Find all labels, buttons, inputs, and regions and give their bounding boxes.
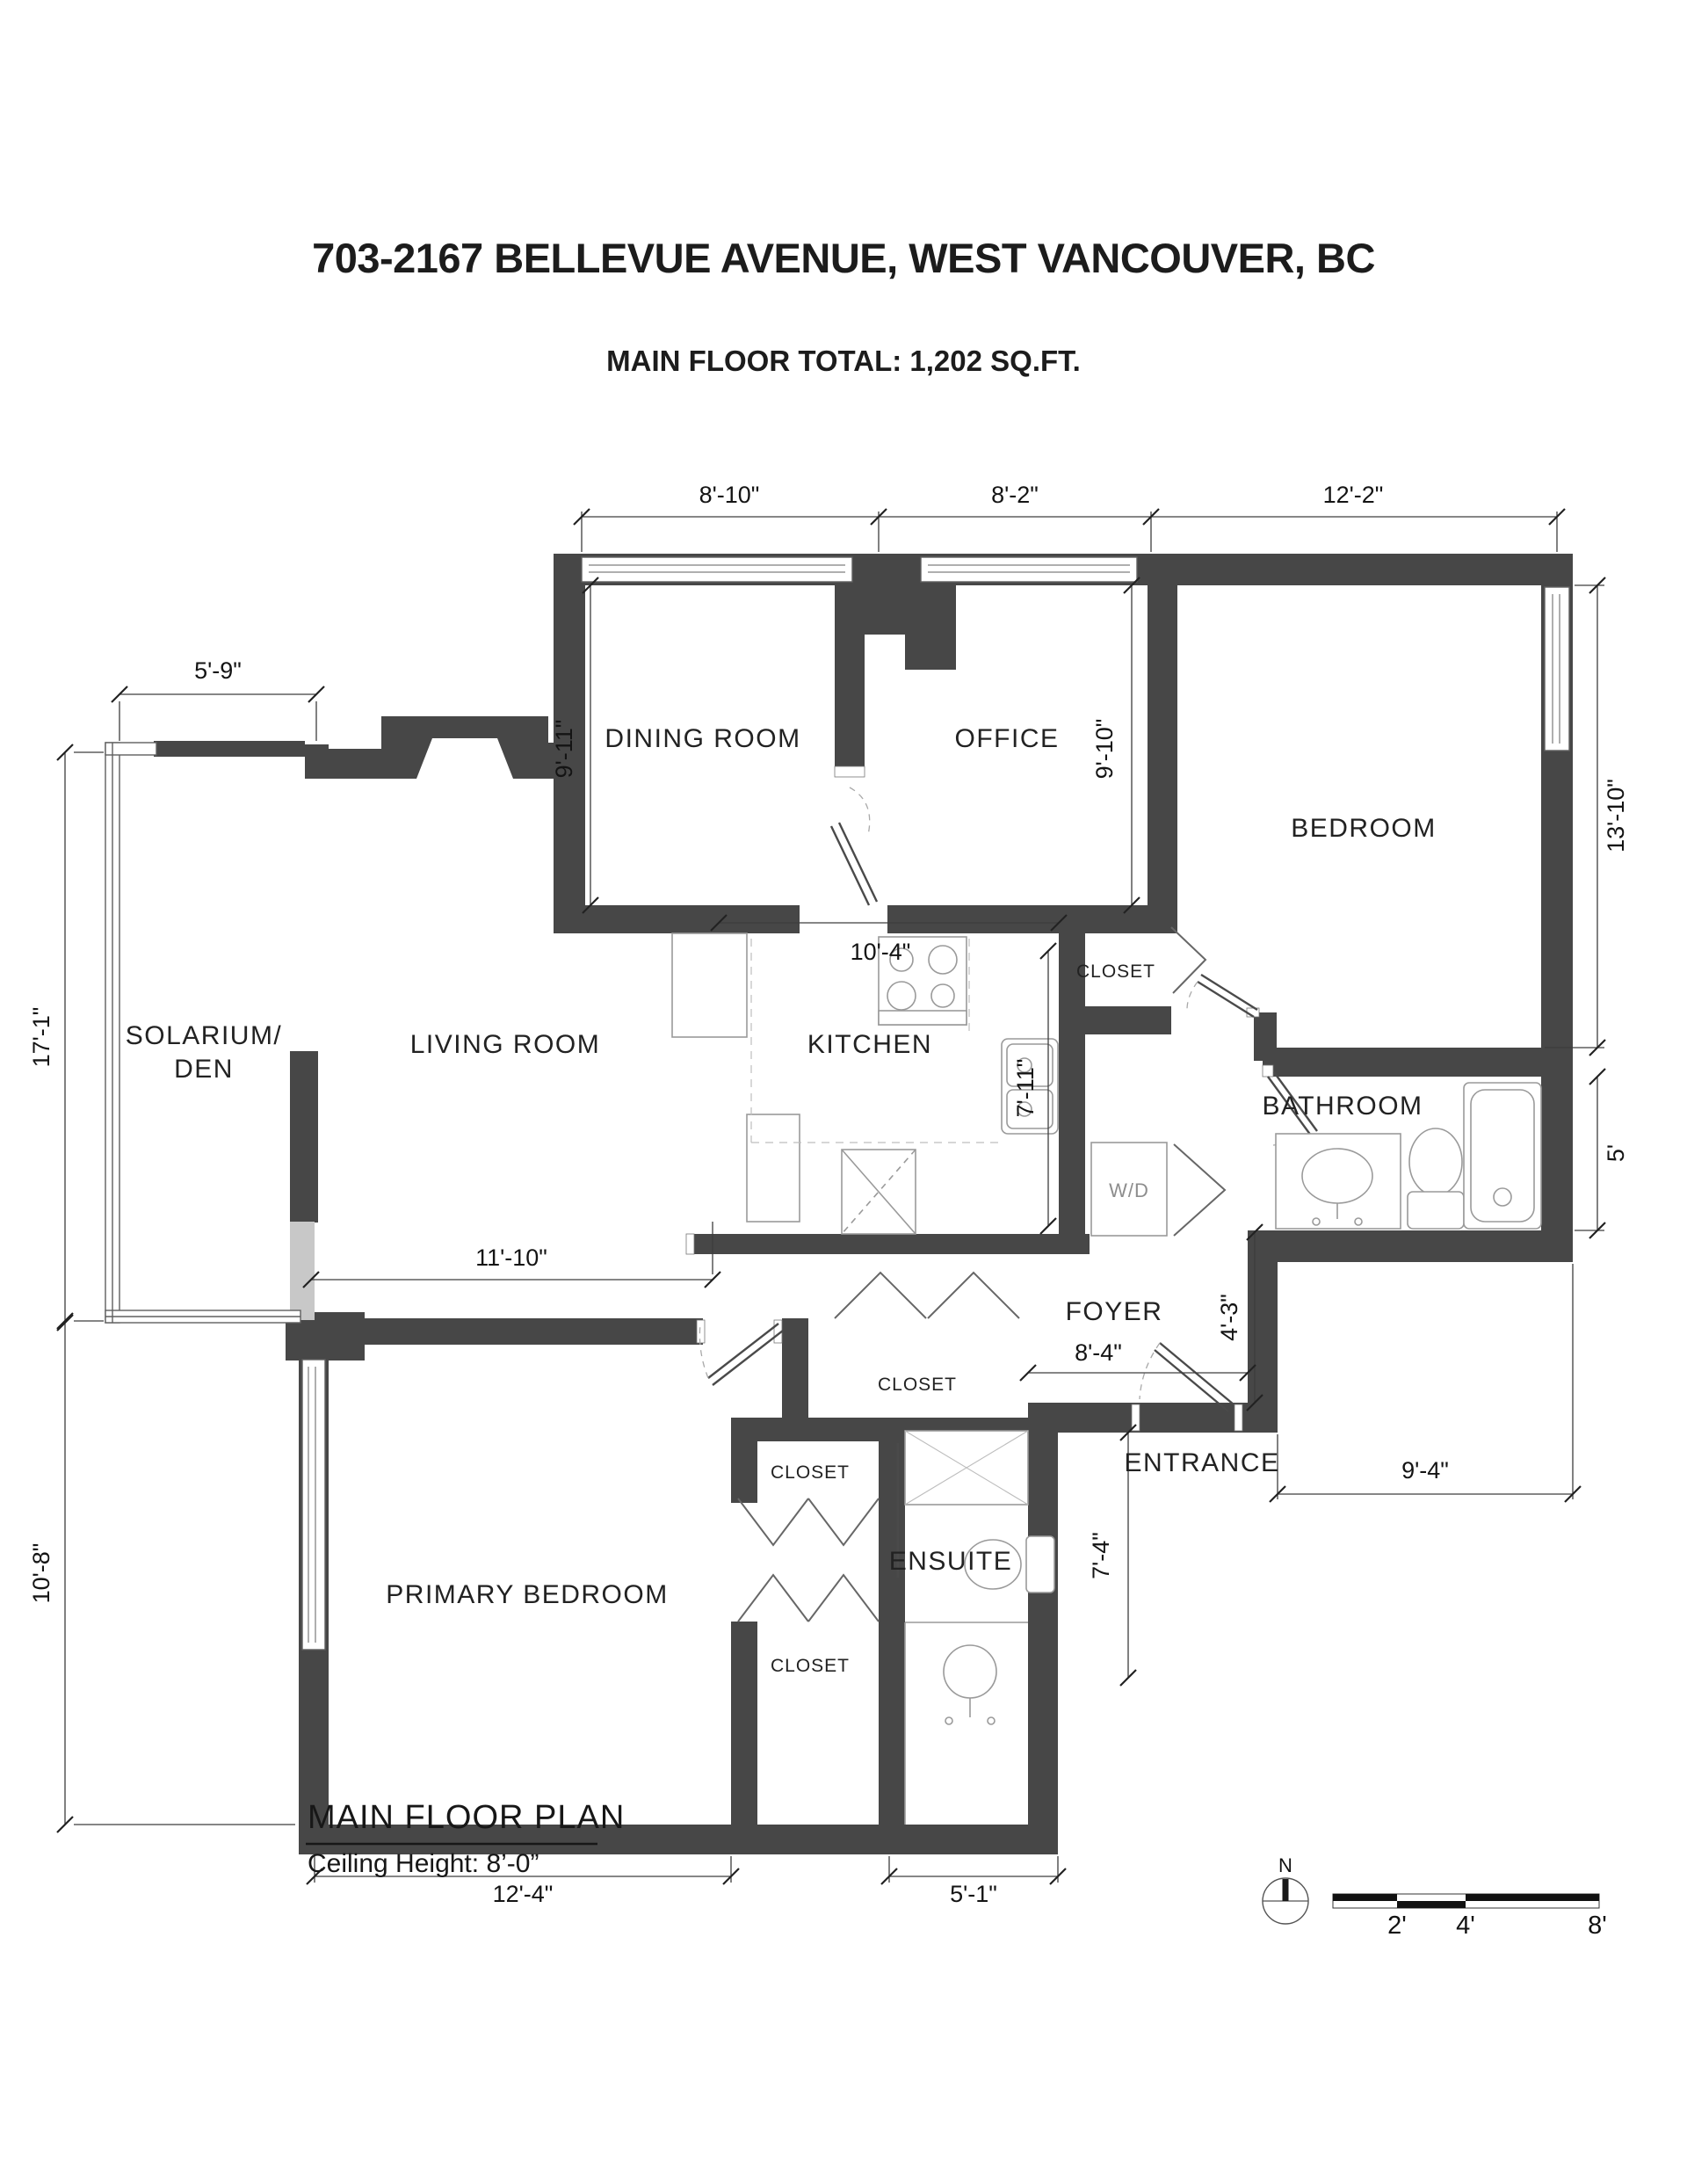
dim-12-2: 12'-2" [1323,482,1384,508]
dim-4-3: 4'-3" [1216,1294,1242,1341]
plan-title: MAIN FLOOR PLAN [308,1799,625,1836]
scale-4ft-label: 4' [1456,1912,1475,1940]
bathroom-vanity [1276,1134,1401,1229]
washer-dryer-label: W/D [1109,1179,1149,1201]
dim-5-9: 5'-9" [194,657,242,684]
closet-primary-b-label: CLOSET [771,1656,850,1676]
solarium-label-line2: DEN [174,1055,234,1084]
dim-9-10: 9'-10" [1091,719,1118,780]
bathtub [1464,1083,1541,1229]
kitchen-cabinet [672,933,747,1037]
scale-bar: 2' 4' 8' [1333,1894,1607,1940]
solarium-label-line1: SOLARIUM/ [126,1021,283,1050]
fireplace [381,716,548,779]
north-arrow-icon: N [1263,1854,1308,1924]
ceiling-height-note: Ceiling Height: 8’-0” [308,1849,539,1878]
closet-bedroom-label: CLOSET [1076,961,1155,982]
closet-primary-a-label: CLOSET [771,1462,850,1483]
dim-17-1: 17'-1" [28,1007,54,1068]
footer: MAIN FLOOR PLAN Ceiling Height: 8’-0” N … [306,1799,1607,1940]
ensuite-sink [905,1622,1028,1825]
kitchen-counter [747,1114,800,1222]
kitchen-label: KITCHEN [807,1030,932,1059]
bathroom-label: BATHROOM [1262,1092,1423,1121]
primary-bedroom-label: PRIMARY BEDROOM [386,1580,668,1609]
office-label: OFFICE [955,724,1060,753]
dim-8-4: 8'-4" [1075,1339,1122,1366]
dim-5: 5' [1603,1144,1629,1162]
page-subtitle: MAIN FLOOR TOTAL: 1,202 SQ.FT. [606,345,1081,377]
dim-5-1: 5'-1" [950,1881,997,1907]
floor-plan-page: 703-2167 BELLEVUE AVENUE, WEST VANCOUVER… [0,0,1687,2184]
ensuite-label: ENSUITE [889,1547,1013,1576]
dim-10-4: 10'-4" [851,939,911,965]
shower [905,1431,1028,1505]
closet-foyer-label: CLOSET [878,1375,957,1395]
entrance-label: ENTRANCE [1124,1448,1279,1477]
corner-pantry [842,1150,916,1234]
dim-9-11: 9'-11" [551,720,577,779]
dim-7-11: 7'-11" [1012,1059,1039,1118]
scale-2ft-label: 2' [1387,1912,1407,1940]
dim-10-8: 10'-8" [28,1543,54,1604]
living-room-label: LIVING ROOM [410,1030,601,1059]
dining-room-label: DINING ROOM [605,724,800,753]
bedroom-label: BEDROOM [1291,814,1437,843]
page-title: 703-2167 BELLEVUE AVENUE, WEST VANCOUVER… [312,235,1375,281]
dim-8-2: 8'-2" [991,482,1039,508]
scale-8ft-label: 8' [1588,1912,1607,1940]
half-wall [290,1222,315,1320]
foyer-label: FOYER [1066,1297,1163,1326]
dim-13-10: 13'-10" [1603,779,1629,853]
dim-9-4: 9'-4" [1401,1457,1449,1484]
floor-plan-canvas: 703-2167 BELLEVUE AVENUE, WEST VANCOUVER… [0,0,1687,2184]
dim-12-4: 12'-4" [493,1881,554,1907]
bathroom-toilet [1408,1128,1464,1229]
dim-8-10: 8'-10" [699,482,760,508]
dim-7-4: 7'-4" [1088,1532,1114,1579]
north-label: N [1278,1854,1292,1876]
door-jambs [686,766,1273,1431]
dim-11-10: 11'-10" [475,1244,547,1271]
